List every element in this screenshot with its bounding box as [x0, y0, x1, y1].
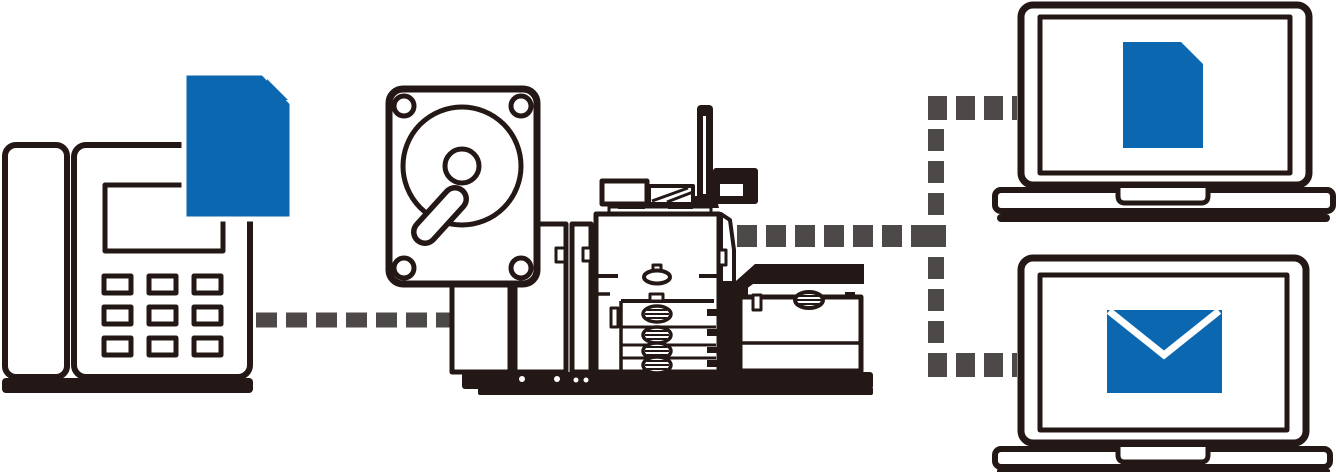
- fax-key: [149, 276, 176, 293]
- hdd-screw: [511, 258, 531, 278]
- fax-keypad: [104, 276, 221, 355]
- hard-disk-drive: [389, 89, 537, 284]
- laptop-email: [995, 258, 1330, 472]
- fax-key: [194, 307, 221, 324]
- fax-key: [149, 307, 176, 324]
- incoming-document-icon: [184, 73, 292, 219]
- adf-hinge: [618, 202, 645, 209]
- side-cover-latch: [719, 250, 726, 265]
- hdd-spindle: [445, 149, 479, 183]
- cabinet-handle: [556, 248, 565, 262]
- caster: [554, 376, 560, 382]
- hdd-screw: [511, 96, 531, 116]
- document-icon: [1123, 42, 1203, 148]
- caster: [519, 376, 525, 382]
- caster: [574, 378, 579, 383]
- fax-key: [104, 307, 131, 324]
- fax-key: [149, 338, 176, 355]
- fax-base-shadow: [2, 378, 253, 393]
- adf-body: [602, 181, 647, 204]
- tray-handle: [643, 327, 671, 343]
- hdd-screw: [394, 96, 414, 116]
- finisher-handle: [795, 292, 823, 308]
- control-panel: [713, 168, 758, 204]
- output-finisher: [727, 264, 864, 371]
- adf-paper-tray: [649, 186, 693, 204]
- tray-handle: [643, 357, 671, 373]
- trackpad-notch: [1118, 188, 1208, 203]
- printer-base: [462, 372, 873, 395]
- fax-key: [194, 276, 221, 293]
- cabinet-handle: [583, 248, 591, 261]
- laptop-shadow: [997, 214, 1330, 222]
- hdd-screw: [394, 258, 414, 278]
- tray-side-latch: [611, 308, 618, 327]
- fax-scan-distribution-diagram: [0, 0, 1336, 472]
- fax-machine: [2, 73, 292, 393]
- printer-cabinet-narrow: [572, 224, 591, 372]
- control-panel-screen: [720, 184, 743, 196]
- adf-hinge: [668, 202, 693, 209]
- trackpad-notch: [1118, 447, 1208, 462]
- front-door-handle: [644, 271, 670, 284]
- tray-handle: [643, 306, 671, 322]
- envelope-icon: [1107, 310, 1222, 393]
- fax-key: [194, 338, 221, 355]
- fax-handset: [5, 145, 67, 377]
- caster: [584, 378, 589, 383]
- fax-key: [104, 338, 131, 355]
- diagram-canvas: [0, 0, 1336, 472]
- finisher-latch: [753, 295, 761, 310]
- laptop-document: [995, 5, 1333, 222]
- fax-key: [104, 276, 131, 293]
